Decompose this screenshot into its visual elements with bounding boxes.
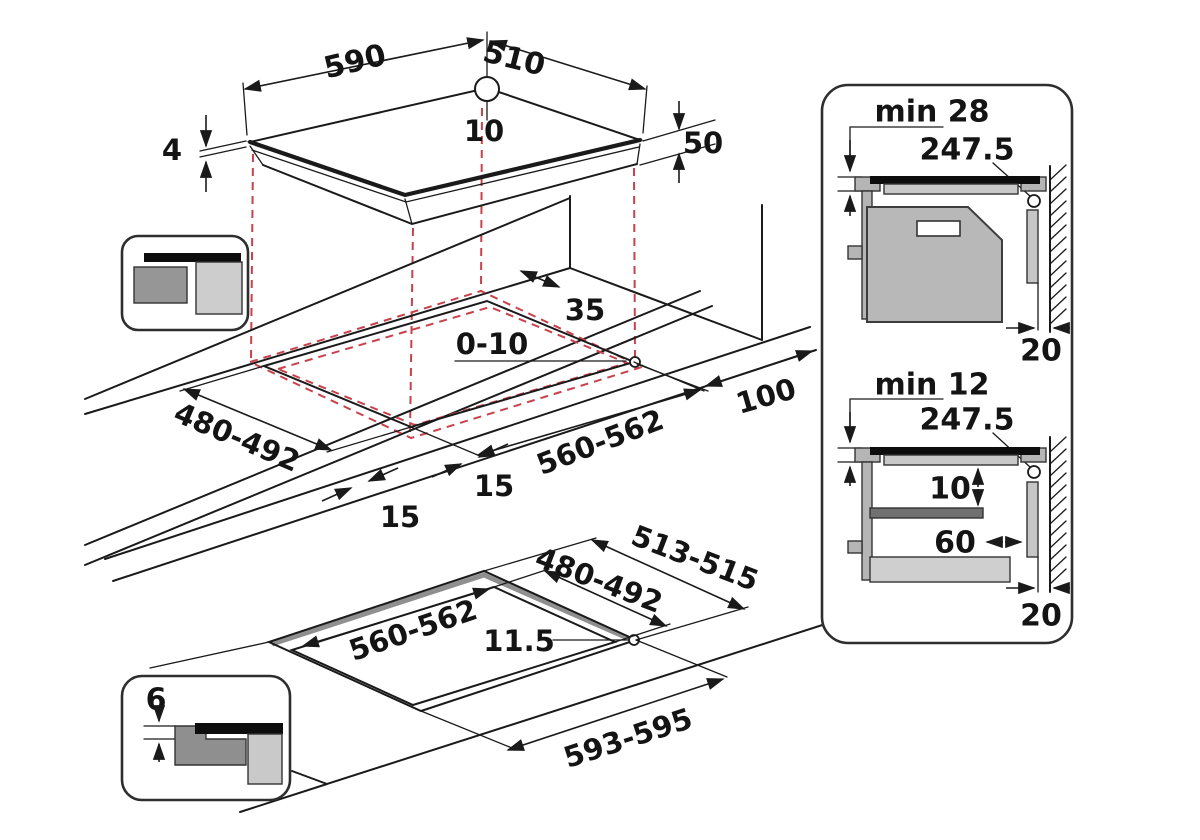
cable-point-bottom <box>1028 466 1040 478</box>
ext-line-510 <box>643 86 647 133</box>
hob-glass-side-bottom <box>870 447 1040 455</box>
dim-593-label: 593-595 <box>559 701 696 774</box>
side-clearance-panel: min 28 247.5 20 min 12 <box>822 85 1072 643</box>
dim-560-flush-label: 560-562 <box>345 592 482 667</box>
hob-body-side-bottom <box>884 455 1018 465</box>
dim-10-gap-label: 10 <box>929 472 971 507</box>
dim-11-5-label: 11.5 <box>483 624 555 658</box>
dim-480-label: 480-492 <box>169 395 305 478</box>
ext-line-rebate-left <box>150 642 269 668</box>
projection-line-front <box>410 228 413 434</box>
dim-0-10-label: 0-10 <box>456 327 529 361</box>
dim-6-label: 6 <box>146 683 167 718</box>
dim-15a-label: 15 <box>380 500 420 534</box>
cable-247-label-bottom: 247.5 <box>920 403 1015 438</box>
dim-4-label: 4 <box>162 133 182 167</box>
rear-spacer-bottom <box>1027 482 1038 557</box>
dim-10-label: 10 <box>464 114 504 148</box>
hob-installation-drawing: 590 510 10 4 50 35 <box>0 0 1200 840</box>
min-28-label: min 28 <box>874 95 989 130</box>
hob-glass-edge <box>250 140 640 195</box>
dim-560-label: 560-562 <box>532 402 668 481</box>
flush-mount-detail-box: 6 <box>122 676 290 800</box>
projection-line-right <box>634 168 635 357</box>
cable-point-top <box>1028 195 1040 207</box>
dim-15a-arrow-left <box>322 488 351 501</box>
dim-20-top-label: 20 <box>1020 334 1062 369</box>
hob-glass-side-top <box>870 176 1040 184</box>
dim-50-label: 50 <box>683 126 723 160</box>
cabinet-panel-cross-section <box>196 262 242 314</box>
cable-hole-circle <box>475 77 499 101</box>
separator-shelf <box>870 508 983 518</box>
drawer-body <box>870 557 1010 582</box>
ext-line-100 <box>637 364 708 391</box>
cable-247-label-top: 247.5 <box>920 133 1015 168</box>
surface-mount-detail-box <box>122 236 248 330</box>
dim-35-label: 35 <box>565 293 605 327</box>
dim-100-label: 100 <box>732 371 800 420</box>
worktop-cross-section <box>134 267 187 303</box>
min-12-label: min 12 <box>874 368 989 403</box>
installation-diagram-page: 590 510 10 4 50 35 <box>0 0 1200 840</box>
dim-60-label: 60 <box>934 526 976 561</box>
hob-isometric-view: 590 510 10 4 50 <box>162 32 723 434</box>
oven-vent <box>917 221 960 236</box>
flush-cabinet-panel <box>248 734 282 784</box>
flush-glass-cross-section <box>195 723 283 734</box>
shelf-pin-bottom <box>848 541 862 553</box>
dim-15b-label: 15 <box>474 469 514 503</box>
shelf-pin-top <box>848 246 862 259</box>
dim-510-label: 510 <box>479 34 548 83</box>
dim-590-label: 590 <box>320 38 389 87</box>
ext-lines-4 <box>200 141 246 157</box>
hob-body-side-top <box>884 184 1018 194</box>
ext-line-590 <box>243 83 247 135</box>
glass-cross-section <box>144 253 241 262</box>
dim-20-bottom-label: 20 <box>1020 599 1062 634</box>
rear-spacer-top <box>1027 210 1038 283</box>
